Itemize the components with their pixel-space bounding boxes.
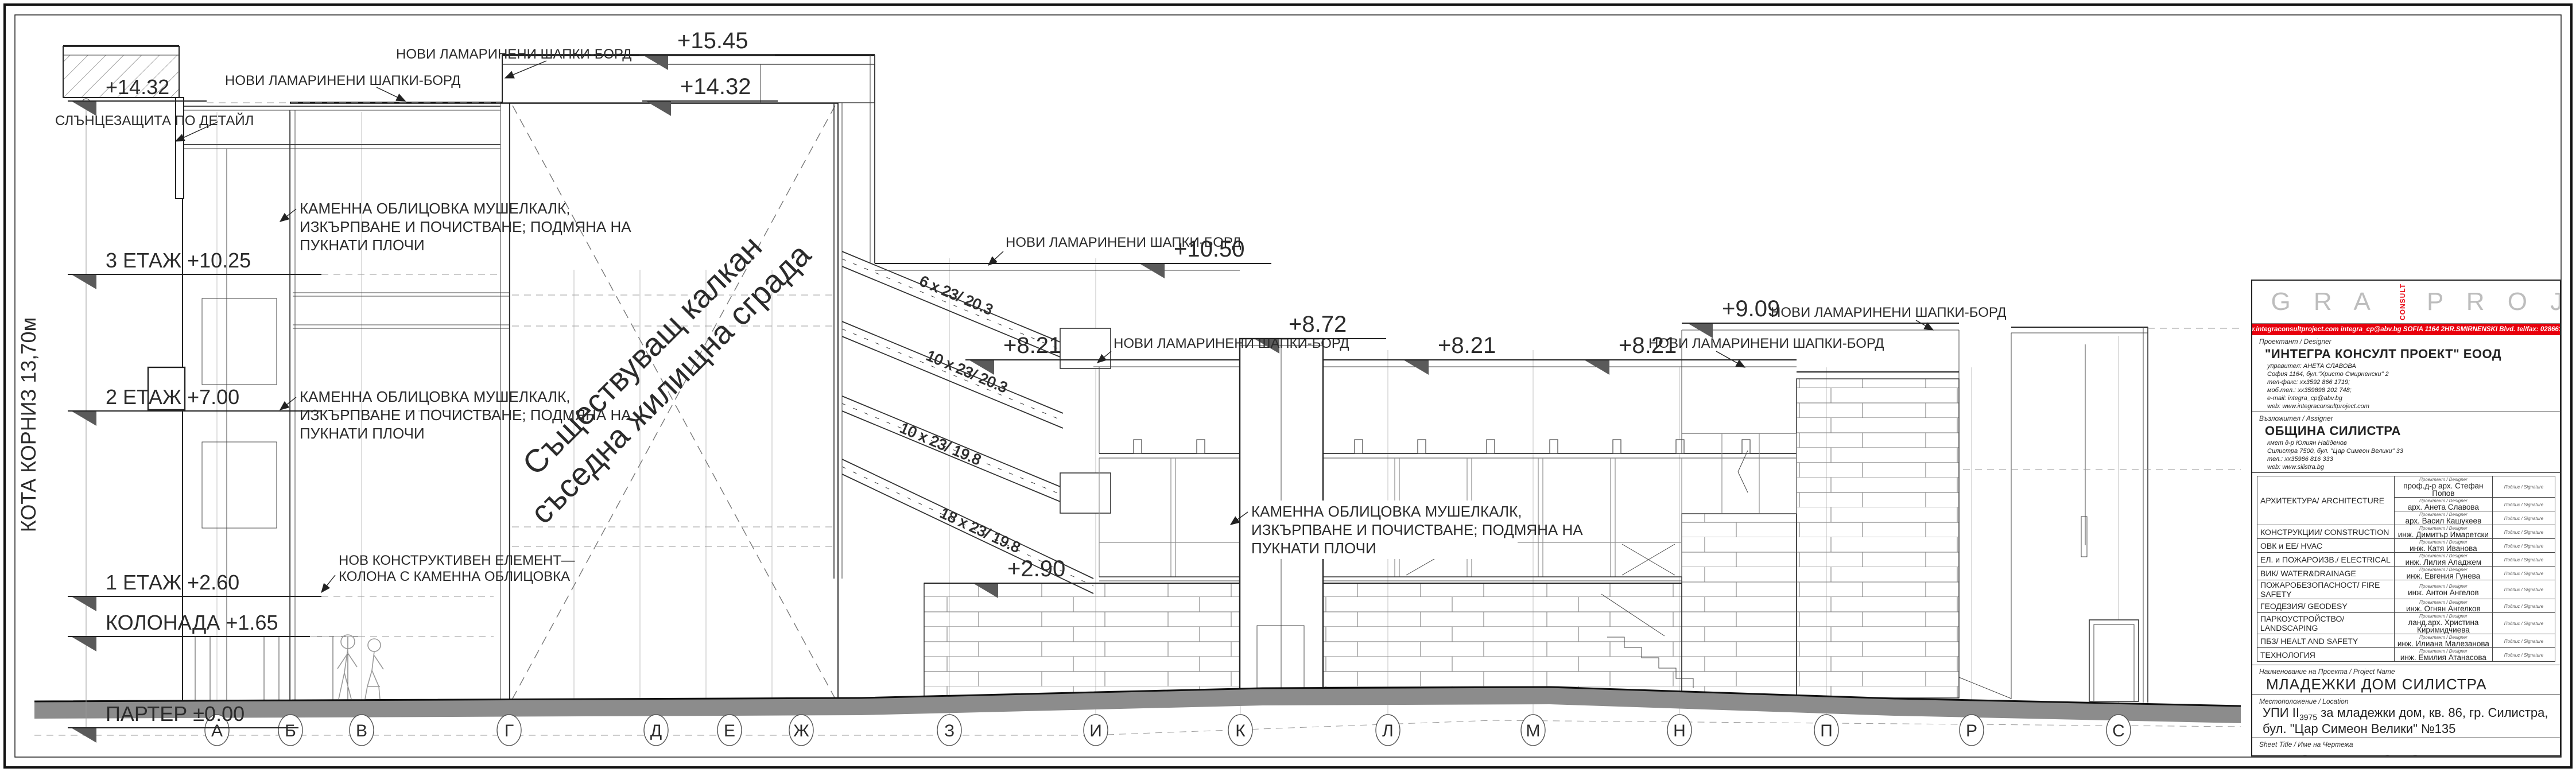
assigner-section: Възложител / Assigner ОБЩИНА СИЛИСТРА км… [2252, 412, 2560, 473]
discipline-label: ЕЛ. и ПОЖАРОИЗВ./ ELECTRICAL [2257, 553, 2395, 567]
level-value: 3 ЕТАЖ +10.25 [106, 249, 251, 272]
company-contact-bar: www.integraconsultproject.com integra_cp… [2252, 324, 2560, 335]
designer-detail: web: www.integraconsultproject.com [2267, 402, 2553, 410]
location-text: за младежки дом, кв. 86, гр. Силистра, [2317, 705, 2548, 720]
callout-text: НОВИ ЛАМАРИНЕНИ ШАПКИ-БОРД [1114, 336, 1349, 351]
level-value: ПАРТЕР ±0.00 [106, 702, 245, 726]
table-row: ТЕХНОЛОГИЯ Проектант / Designerинж. Емил… [2257, 648, 2555, 662]
discipline-label: ГЕОДЕЗИЯ/ GEODESY [2257, 599, 2395, 613]
cell-mini-label: Подпис / Signature [2496, 502, 2552, 507]
designer-person: арх. Васил Кашукеев [2397, 517, 2489, 525]
discipline-label: ТЕХНОЛОГИЯ [2257, 648, 2395, 662]
title-block: I N T E G R A CONSULT P R O J E C T www.… [2251, 280, 2561, 757]
discipline-label: КОНСТРУКЦИИ/ CONSTRUCTION [2257, 525, 2395, 539]
logo-integra: I N T E G R A [2251, 288, 2379, 316]
level-value: +14.32 [106, 75, 169, 99]
cell-mini-label: Подпис / Signature [2496, 638, 2552, 644]
designer-person: инж. Антон Ангелов [2397, 589, 2489, 596]
project-name: МЛАДЕЖКИ ДОМ СИЛИСТРА [2266, 676, 2553, 693]
designer-person: инж. Огнян Ангелков [2397, 605, 2489, 612]
level-value: +2.90 [1007, 556, 1065, 581]
callout-line: ПУКНАТИ ПЛОЧИ [1251, 540, 1376, 557]
cell-mini-label: Подпис / Signature [2496, 484, 2552, 490]
designer-person: инж. Лилия Аладжем [2397, 558, 2489, 566]
location-line2: бул. "Цар Симеон Велики" №135 [2263, 721, 2553, 736]
callout-line: ПУКНАТИ ПЛОЧИ [300, 425, 425, 442]
logo-consult: CONSULT [2399, 284, 2407, 320]
designer-name: "ИНТЕГРА КОНСУЛТ ПРОЕКТ" ЕООД [2265, 347, 2553, 362]
level-value: +8.72 [1289, 312, 1347, 337]
project-name-section: Наименование на Проекта / Project Name М… [2252, 665, 2560, 695]
cell-mini-label: Подпис / Signature [2496, 543, 2552, 549]
table-row: ПОЖАРОБЕЗОПАСНОСТ/ FIRE SAFETY Проектант… [2257, 580, 2555, 599]
discipline-label: ВИК/ WATER&DRAINAGE [2257, 567, 2395, 580]
axis-label: Ж [793, 721, 809, 740]
level-value: 1 ЕТАЖ +2.60 [106, 571, 239, 594]
callout-text: НОВИ ЛАМАРИНЕНИ ШАПКИ-БОРД [1771, 305, 2007, 320]
callout-line: ИЗКЪРПВАНЕ И ПОЧИСТВАНЕ; ПОДМЯНА НА [1251, 521, 1583, 538]
level-value: 2 ЕТАЖ +7.00 [106, 385, 239, 409]
table-row: ГЕОДЕЗИЯ/ GEODESY Проектант / Designerин… [2257, 599, 2555, 613]
axis-label: Л [1382, 721, 1394, 740]
cell-mini-label: Подпис / Signature [2496, 603, 2552, 609]
callout-text: НОВИ ЛАМАРИНЕНИ ШАПКИ-БОРД [396, 46, 632, 62]
discipline-label: ОВК и ЕЕ/ HVAC [2257, 539, 2395, 553]
designer-person: ланд.арх. Христина Киримидчиева [2397, 619, 2489, 634]
axis-label: Р [1966, 721, 1977, 740]
assigner-name: ОБЩИНА СИЛИСТРА [2265, 424, 2553, 439]
designer-person: инж. Катя Иванова [2397, 545, 2489, 552]
level-value: +14.32 [680, 74, 751, 99]
designer-detail: управител: АНЕТА СЛАВОВА [2267, 362, 2553, 370]
axis-label: В [356, 721, 367, 740]
callout-line: ИЗКЪРПВАНЕ И ПОЧИСТВАНЕ; ПОДМЯНА НА [300, 406, 631, 424]
assigner-detail: web: www.silistra.bg [2267, 463, 2553, 471]
designer-section: Проектант / Designer "ИНТЕГРА КОНСУЛТ ПР… [2252, 335, 2560, 412]
designer-person: арх. Анета Славова [2397, 503, 2489, 511]
discipline-label: ПБЗ/ HEALT AND SAFETY [2257, 634, 2395, 648]
callout-line: ПУКНАТИ ПЛОЧИ [300, 236, 425, 254]
logo-project: P R O J E C T [2427, 288, 2561, 316]
callout-text: НОВИ ЛАМАРИНЕНИ ШАПКИ-БОРД [1006, 235, 1242, 250]
sheet-title: ФАСАДА ИЗТОК [2266, 751, 2553, 757]
callout-line: КАМЕННА ОБЛИЦОВКА МУШЕЛКАЛК, [1251, 503, 1522, 520]
table-row: ВИК/ WATER&DRAINAGE Проектант / Designer… [2257, 567, 2555, 580]
axis-label: Е [724, 721, 735, 740]
discipline-label: АРХИТЕКТУРА/ ARCHITECTURE [2257, 476, 2395, 525]
cell-mini-label: Подпис / Signature [2496, 571, 2552, 576]
designer-person: инж. Евгения Гунева [2397, 572, 2489, 580]
axis-label: П [1820, 721, 1833, 740]
axis-label: К [1235, 721, 1246, 740]
cornice-height-label: КОТА КОРНИЗ 13,70м [17, 317, 40, 532]
disciplines-table: АРХИТЕКТУРА/ ARCHITECTURE Проектант / De… [2257, 476, 2555, 662]
company-logo: I N T E G R A CONSULT P R O J E C T [2252, 281, 2560, 324]
discipline-label: ПОЖАРОБЕЗОПАСНОСТ/ FIRE SAFETY [2257, 580, 2395, 599]
discipline-label: ПАРКОУСТРОЙСТВО/ LANDSCAPING [2257, 613, 2395, 634]
level-value: +8.21 [1438, 333, 1496, 358]
axis-label: М [1526, 721, 1541, 740]
callout-line: НОВ КОНСТРУКТИВЕН ЕЛЕМЕНТ— [339, 553, 575, 568]
designer-label: Проектант / Designer [2259, 337, 2553, 346]
project-name-label: Наименование на Проекта / Project Name [2259, 668, 2553, 676]
axis-label: И [1089, 721, 1102, 740]
cell-mini-label: Подпис / Signature [2496, 557, 2552, 562]
cell-mini-label: Подпис / Signature [2496, 620, 2552, 626]
table-row: ПАРКОУСТРОЙСТВО/ LANDSCAPING Проектант /… [2257, 613, 2555, 634]
table-row: ОВК и ЕЕ/ HVAC Проектант / Designerинж. … [2257, 539, 2555, 553]
designer-detail: моб.тел.: xx359898 202 748; [2267, 386, 2553, 394]
location-upi: УПИ II [2263, 705, 2299, 720]
axis-label: Н [1673, 721, 1686, 740]
assigner-detail: Силистра 7500, бул. "Цар Симеон Велики" … [2267, 447, 2553, 455]
cell-mini-label: Подпис / Signature [2496, 587, 2552, 592]
designer-person: инж. Емилия Атанасова [2397, 654, 2489, 661]
location-upi-number: 3975 [2299, 712, 2317, 721]
axis-label: С [2112, 721, 2125, 740]
assigner-detail: тел.: xx35986 816 333 [2267, 455, 2553, 463]
callout-line: ИЗКЪРПВАНЕ И ПОЧИСТВАНЕ; ПОДМЯНА НА [300, 218, 631, 235]
callout-text: НОВИ ЛАМАРИНЕНИ ШАПКИ-БОРД [1648, 336, 1884, 351]
designer-person: инж. Илиана Малезанова [2397, 640, 2489, 647]
designer-person: инж. Димитър Имаретски [2397, 531, 2489, 538]
axis-label: Б [285, 721, 296, 740]
callout-text: СЛЪНЦЕЗАЩИТА ПО ДЕТАЙЛ [55, 112, 254, 129]
level-value: +15.45 [677, 28, 748, 53]
table-row: ЕЛ. и ПОЖАРОИЗВ./ ELECTRICAL Проектант /… [2257, 553, 2555, 567]
level-value: КОЛОНАДА +1.65 [106, 611, 278, 634]
table-row: КОНСТРУКЦИИ/ CONSTRUCTION Проектант / De… [2257, 525, 2555, 539]
sheet-title-section: Sheet Title / Име на Чертежа ФАСАДА ИЗТО… [2252, 738, 2560, 757]
callout-line: КОЛОНА С КАМЕННА ОБЛИЦОВКА [339, 569, 570, 584]
level-value: +8.21 [1003, 333, 1061, 358]
designer-detail: София 1164, бул."Христо Смирненски" 2 [2267, 370, 2553, 378]
cell-mini-label: Подпис / Signature [2496, 515, 2552, 521]
callout-line: КАМЕННА ОБЛИЦОВКА МУШЕЛКАЛК, [300, 200, 570, 217]
location-section: Местоположение / Location УПИ II3975 за … [2252, 695, 2560, 738]
location-label: Местоположение / Location [2259, 697, 2553, 705]
assigner-label: Възложител / Assigner [2259, 414, 2553, 422]
table-row: ПБЗ/ HEALT AND SAFETY Проектант / Design… [2257, 634, 2555, 648]
cell-mini-label: Проектант / Designer [2397, 583, 2489, 589]
sheet-title-label: Sheet Title / Име на Чертежа [2259, 740, 2553, 748]
elevation-drawing: Съществуващ калкан съседна жилищна сград… [0, 0, 2576, 772]
cell-mini-label: Подпис / Signature [2496, 529, 2552, 535]
cell-mini-label: Подпис / Signature [2496, 652, 2552, 658]
axis-label: Г [505, 721, 514, 740]
designer-detail: e-mail: integra_cp@abv.bg [2267, 394, 2553, 402]
assigner-detail: кмет д-р Юлиян Найденов [2267, 439, 2553, 447]
axis-label: З [944, 721, 955, 740]
designer-detail: тел-факс: xx3592 866 1719; [2267, 378, 2553, 386]
callout-line: КАМЕННА ОБЛИЦОВКА МУШЕЛКАЛК, [300, 388, 570, 405]
callout-text: НОВИ ЛАМАРИНЕНИ ШАПКИ-БОРД [225, 73, 461, 88]
axis-label: Д [650, 721, 662, 740]
drawing-sheet: Съществуващ калкан съседна жилищна сград… [0, 0, 2576, 772]
table-row: АРХИТЕКТУРА/ ARCHITECTURE Проектант / De… [2257, 476, 2555, 498]
designer-person: проф.д-р арх. Стефан Попов [2397, 482, 2489, 497]
